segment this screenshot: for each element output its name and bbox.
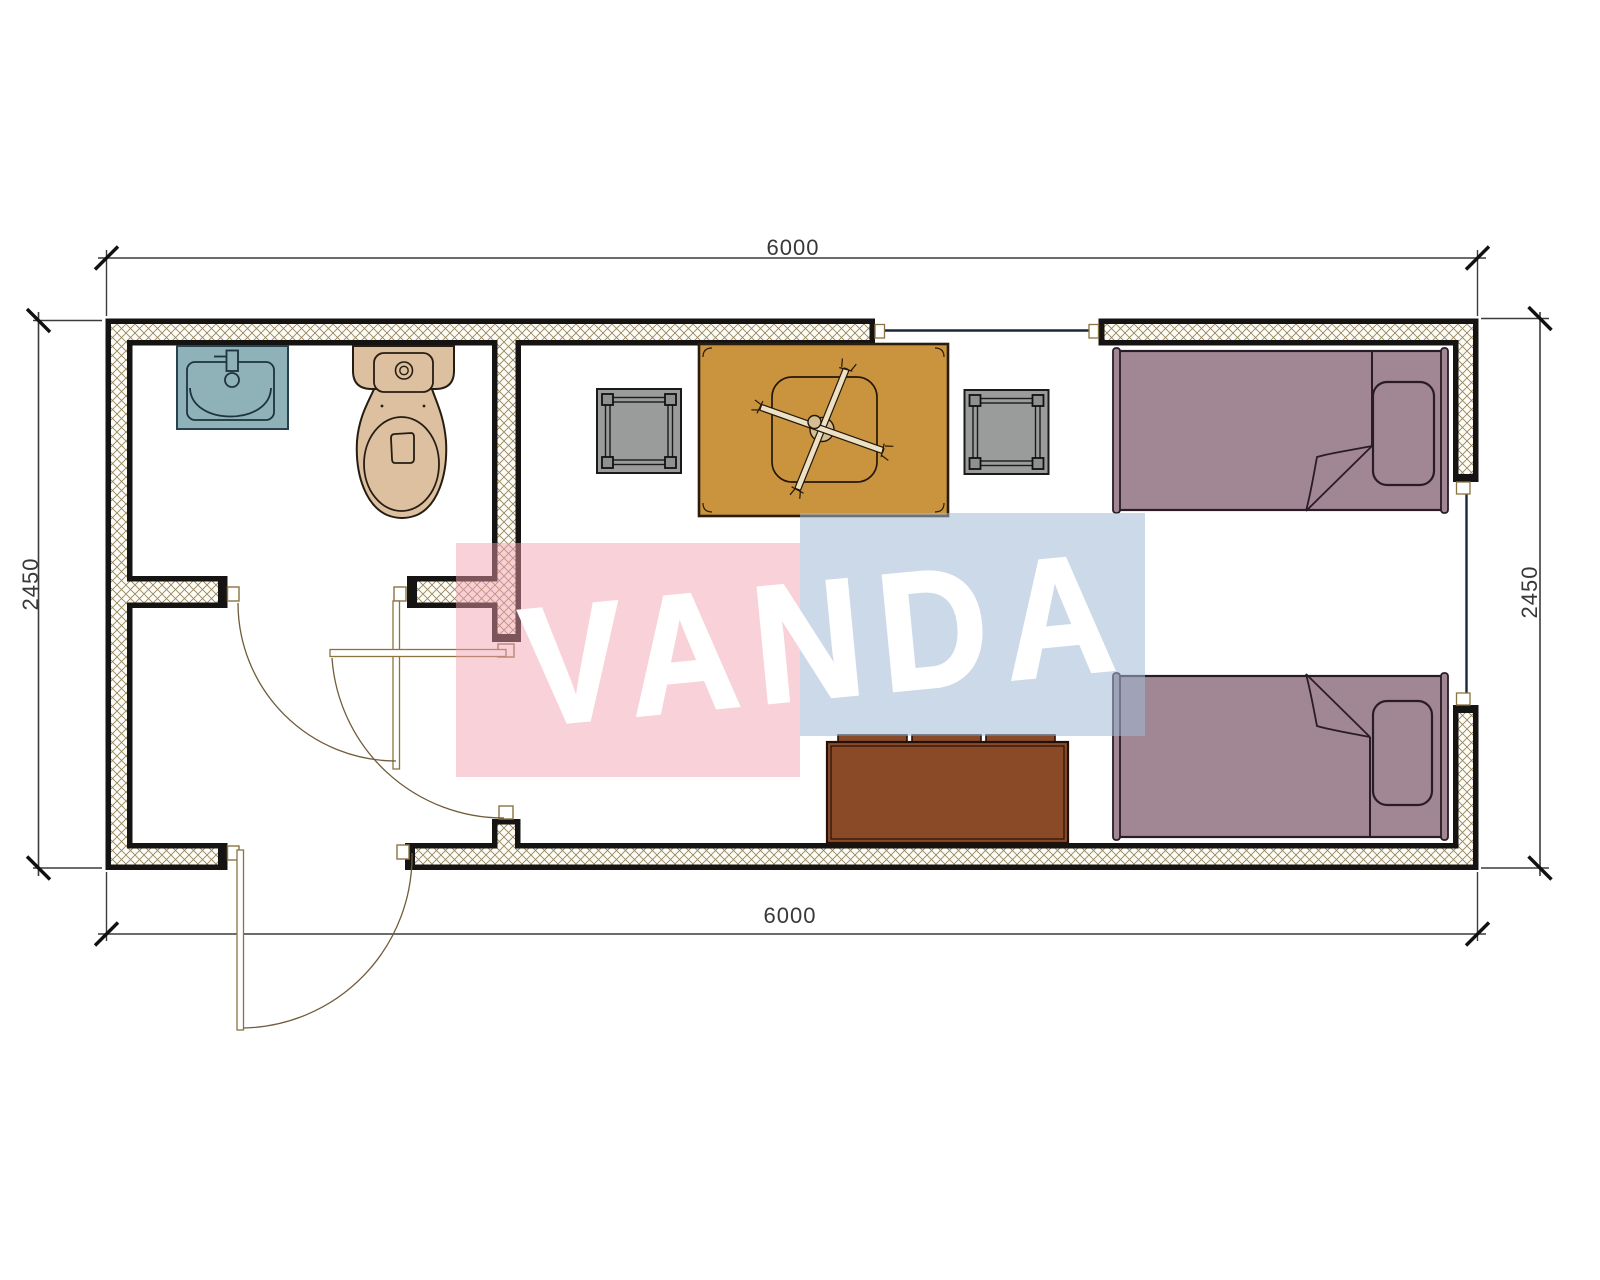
- svg-text:6000: 6000: [764, 903, 817, 928]
- svg-text:2450: 2450: [1517, 566, 1542, 619]
- svg-text:6000: 6000: [767, 235, 820, 260]
- svg-text:2450: 2450: [18, 558, 43, 611]
